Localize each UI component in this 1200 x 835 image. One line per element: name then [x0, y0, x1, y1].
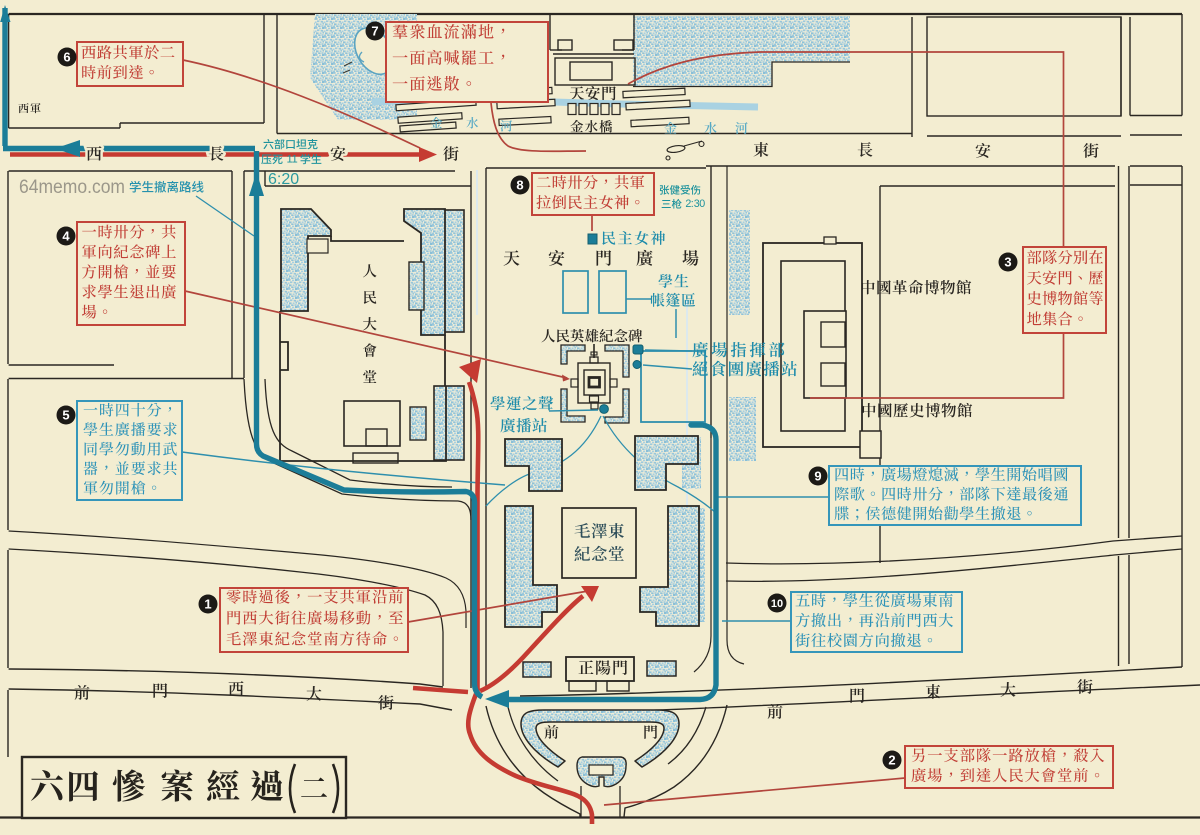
- svg-text:64memo.com: 64memo.com: [19, 176, 125, 198]
- svg-text:6:20: 6:20: [268, 171, 299, 188]
- svg-text:6: 6: [63, 50, 70, 65]
- svg-text:9: 9: [814, 469, 821, 484]
- svg-text:3: 3: [1004, 255, 1011, 270]
- svg-text:7: 7: [371, 24, 378, 39]
- svg-text:5: 5: [62, 408, 69, 423]
- svg-text:10: 10: [771, 598, 783, 610]
- svg-text:1: 1: [204, 597, 211, 612]
- svg-text:4: 4: [62, 229, 70, 244]
- svg-text:0: 0: [699, 198, 705, 210]
- svg-text:1: 1: [292, 153, 298, 165]
- svg-text:8: 8: [516, 178, 523, 193]
- svg-text:2: 2: [888, 753, 895, 768]
